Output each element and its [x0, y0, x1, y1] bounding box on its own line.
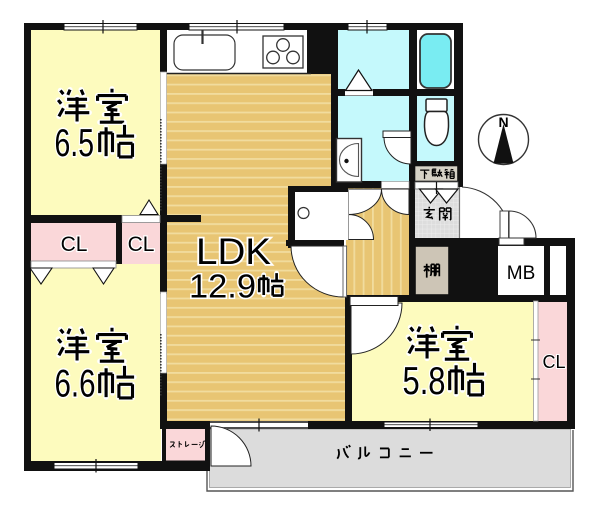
svg-text:CL: CL: [542, 352, 565, 372]
svg-text:6.5: 6.5: [55, 122, 95, 165]
svg-text:6.6: 6.6: [55, 363, 96, 406]
svg-text:N: N: [498, 114, 508, 130]
svg-text:CL: CL: [61, 233, 88, 256]
svg-text:12.9: 12.9: [189, 268, 256, 305]
svg-text:MB: MB: [507, 263, 536, 284]
svg-text:CL: CL: [128, 233, 155, 256]
svg-text:LDK: LDK: [196, 231, 271, 272]
svg-text:5.8: 5.8: [403, 360, 446, 403]
